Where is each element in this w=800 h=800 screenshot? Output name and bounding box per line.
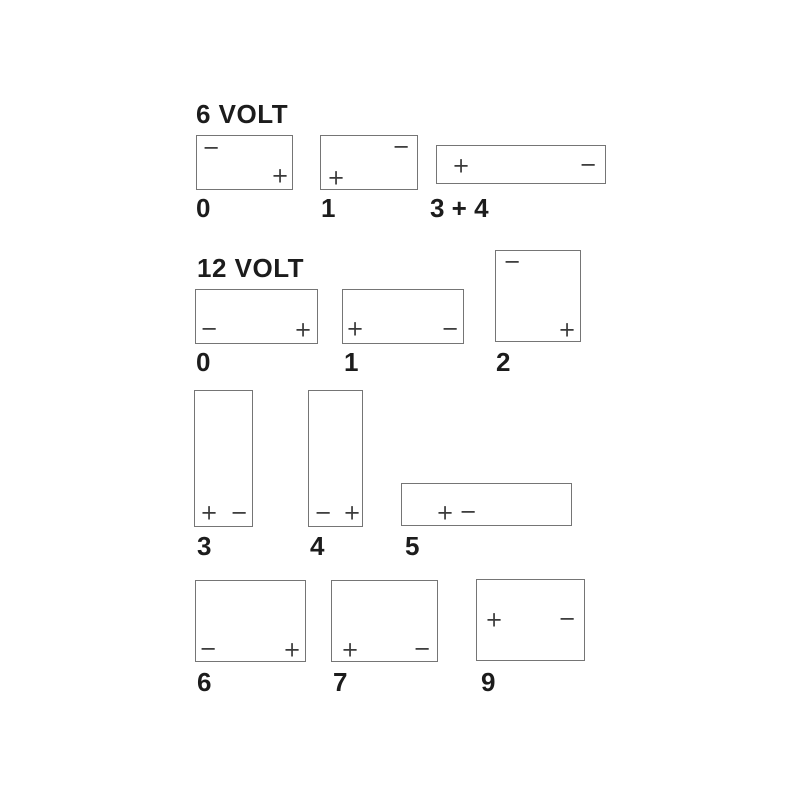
battery-box-12v-0: − + <box>195 289 318 344</box>
terminal-positive: + <box>485 610 503 631</box>
terminal-positive: + <box>327 168 345 189</box>
battery-box-12v-7: + − <box>331 580 438 662</box>
battery-label-12v-1: 1 <box>344 349 358 375</box>
battery-box-12v-3: + − <box>194 390 253 527</box>
section-heading-6-volt: 6 VOLT <box>196 101 288 127</box>
battery-layout-diagram: 6 VOLT − + 0 − + 1 + − 3 + 4 12 VOLT − +… <box>0 0 800 800</box>
battery-box-12v-2: − + <box>495 250 581 342</box>
terminal-negative: − <box>392 137 410 158</box>
terminal-positive: + <box>341 640 359 661</box>
terminal-positive: + <box>343 503 361 524</box>
terminal-positive: + <box>283 640 301 661</box>
battery-label-12v-4: 4 <box>310 533 324 559</box>
terminal-negative: − <box>199 639 217 660</box>
terminal-negative: − <box>413 639 431 660</box>
terminal-negative: − <box>441 319 459 340</box>
battery-label-12v-7: 7 <box>333 669 347 695</box>
battery-label-6v-0: 0 <box>196 195 210 221</box>
terminal-negative: − <box>558 609 576 630</box>
battery-box-12v-9: + − <box>476 579 585 661</box>
battery-label-12v-9: 9 <box>481 669 495 695</box>
terminal-negative: − <box>200 319 218 340</box>
terminal-positive: + <box>558 320 576 341</box>
terminal-positive: + <box>452 156 470 177</box>
battery-label-12v-6: 6 <box>197 669 211 695</box>
battery-box-6v-3-4: + − <box>436 145 606 184</box>
battery-label-12v-2: 2 <box>496 349 510 375</box>
terminal-negative: − <box>202 138 220 159</box>
terminal-positive: + <box>294 320 312 341</box>
battery-label-12v-0: 0 <box>196 349 210 375</box>
terminal-negative: − <box>230 503 248 524</box>
terminal-positive: + <box>436 503 454 524</box>
terminal-positive: + <box>346 319 364 340</box>
terminal-negative: − <box>503 252 521 273</box>
battery-label-6v-3-4: 3 + 4 <box>430 195 489 221</box>
battery-box-12v-4: − + <box>308 390 363 527</box>
battery-label-6v-1: 1 <box>321 195 335 221</box>
battery-label-12v-5: 5 <box>405 533 419 559</box>
terminal-negative: − <box>579 155 597 176</box>
terminal-negative: − <box>314 503 332 524</box>
battery-box-12v-5: + − <box>401 483 572 526</box>
terminal-positive: + <box>200 503 218 524</box>
battery-box-6v-1: − + <box>320 135 418 190</box>
terminal-positive: + <box>271 166 289 187</box>
battery-box-6v-0: − + <box>196 135 293 190</box>
battery-box-12v-1: + − <box>342 289 464 344</box>
battery-label-12v-3: 3 <box>197 533 211 559</box>
terminal-negative: − <box>459 502 477 523</box>
section-heading-12-volt: 12 VOLT <box>197 255 304 281</box>
battery-box-12v-6: − + <box>195 580 306 662</box>
